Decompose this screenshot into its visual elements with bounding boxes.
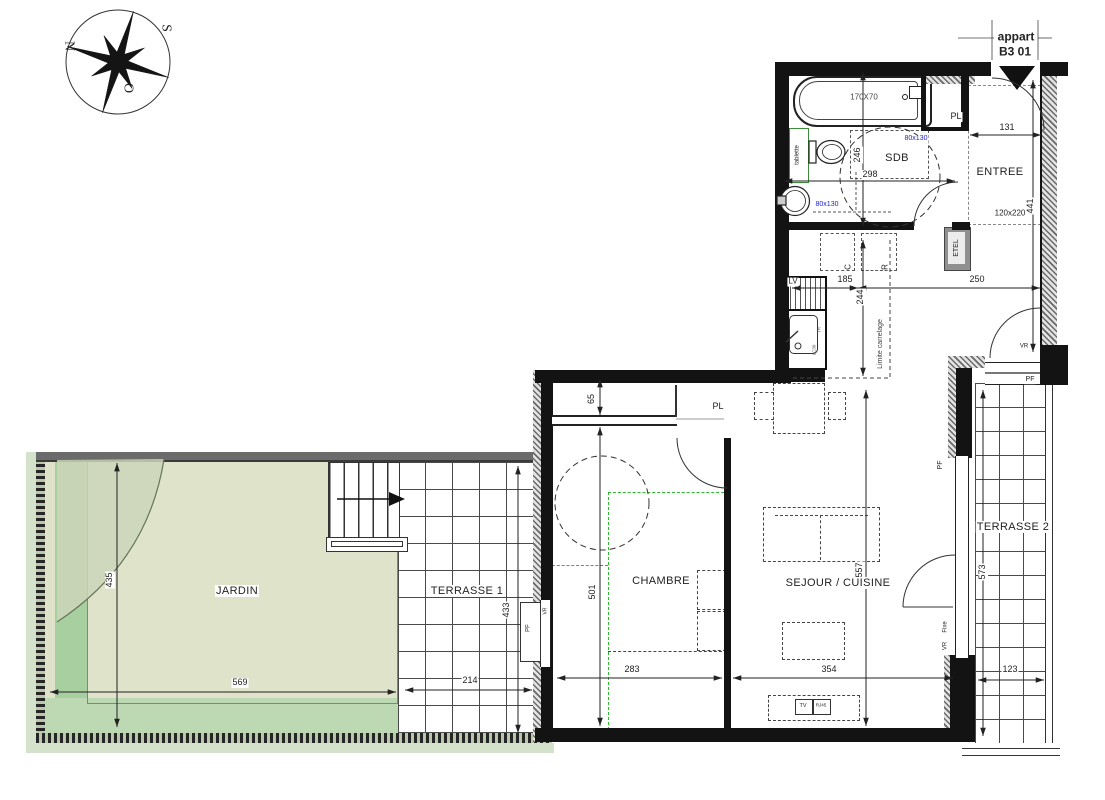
dining-chair-left — [754, 392, 774, 420]
tv-label: TV — [798, 703, 807, 709]
dim-65: 65 — [587, 393, 597, 405]
bathtub-size-label: 170X70 — [849, 94, 879, 103]
dim-433: 433 — [502, 601, 512, 618]
terrasse2-label: TERRASSE 2 — [976, 521, 1050, 533]
mid-west-wall-hatch — [533, 370, 541, 742]
dim-573: 573 — [978, 563, 988, 580]
fridge-zone — [861, 233, 897, 271]
nightstand-1 — [697, 570, 726, 610]
entree-label: ENTREE — [975, 166, 1024, 178]
dim-246: 246 — [853, 146, 863, 163]
dim-185: 185 — [836, 275, 853, 285]
etel-label: ETEL — [953, 238, 961, 258]
bed-clearance-line — [552, 565, 608, 566]
fridge-label: R — [882, 263, 891, 271]
floor-plan: appart B3 01 N S O JARDIN TERRASSE 1 TER… — [0, 0, 1105, 800]
pl-south-wall — [921, 127, 969, 131]
jardin-top-wall — [36, 452, 538, 462]
dim-557: 557 — [855, 561, 865, 578]
pf-east-label: PF — [937, 460, 945, 471]
dining-chair-right — [828, 392, 846, 420]
sofa-divider-line — [820, 515, 821, 560]
dim-214: 214 — [461, 676, 478, 686]
lc30-label: LC30 — [813, 344, 818, 357]
toilet — [809, 141, 845, 164]
tablette-label: tablette — [795, 144, 802, 166]
tile-limit-label: Limite carrelage — [877, 318, 885, 370]
compass-west-label: O — [120, 82, 135, 94]
jardin-outer-margin-bottom — [26, 743, 554, 753]
sdb-south-wall-a — [789, 222, 914, 230]
sejour-east-door-frame — [955, 552, 969, 658]
pl-divider-wall — [921, 76, 926, 128]
dim-354: 354 — [820, 665, 837, 675]
pl-top-label: PL — [949, 112, 962, 122]
vr-terrasse2-label: VR — [1019, 344, 1029, 351]
sejour-east-wall-upper — [956, 368, 972, 458]
tr-label: TR — [818, 326, 823, 334]
sdb-north-wall — [775, 62, 991, 76]
dim-250: 250 — [968, 275, 985, 285]
east-exterior-wall — [1040, 76, 1057, 363]
sejour-label: SEJOUR / CUISINE — [785, 577, 892, 589]
chambre-door-arc — [677, 438, 727, 488]
terrasse1-label: TERRASSE 1 — [430, 585, 504, 597]
sejour-door-arc — [903, 555, 955, 607]
lv-label: LV — [787, 278, 798, 287]
sdb-west-wall — [775, 62, 789, 378]
jardin-fence-bottom — [36, 733, 552, 743]
entree-window-arc — [990, 308, 1040, 358]
apartment-label-line1: appart — [997, 30, 1036, 43]
sdb-door-arc — [914, 182, 958, 226]
dim-131: 131 — [998, 123, 1015, 133]
entree-mat-size-label: 120x220 — [994, 210, 1027, 219]
entree-south-hatch-wall — [948, 356, 985, 368]
vr-west-label: VR — [543, 607, 549, 616]
jardin-fence-left — [36, 452, 45, 743]
compass-rose — [66, 10, 170, 114]
sdb-label: SDB — [884, 152, 910, 164]
dim-435: 435 — [105, 571, 115, 588]
bed-mid-line — [608, 651, 727, 652]
chambre-label: CHAMBRE — [631, 575, 691, 587]
dim-283: 283 — [623, 665, 640, 675]
terrasse2-railing-bottom — [962, 748, 1060, 756]
entree-terrasse2-window-mullion — [985, 372, 1040, 374]
dim-441: 441 — [1026, 197, 1036, 214]
dim-123: 123 — [1001, 665, 1018, 675]
terrasse1-floor-tiles — [398, 462, 534, 733]
compass-south-label: S — [158, 23, 173, 33]
garden-stairs-landing-inner — [331, 541, 403, 547]
fixe-east-label: Fixe — [943, 620, 950, 633]
sdb-south-wall-b — [952, 222, 970, 230]
cooker-label: C — [845, 263, 854, 271]
sdb-door-size-label-2: 80x130 — [815, 201, 840, 209]
pl-chambre-label: PL — [711, 402, 724, 412]
chambre-east-wall — [724, 438, 731, 728]
garden-stairs — [328, 462, 400, 539]
mid-south-wall — [535, 728, 975, 742]
dim-501: 501 — [588, 583, 598, 600]
mid-north-wall — [535, 370, 791, 383]
terrasse2-railing-right — [1045, 383, 1053, 743]
compass-north-label: N — [61, 40, 76, 52]
coffee-table — [782, 622, 845, 660]
dining-table — [773, 383, 825, 434]
terrasse2-ne-corner-wall — [1040, 345, 1068, 385]
pl-chambre-divider — [675, 385, 677, 417]
pl-chambre-wall — [552, 415, 677, 426]
rj45-label: RJ45 — [815, 704, 828, 709]
jardin-outer-margin-left — [26, 452, 36, 753]
entry-north-corner-wall — [1040, 62, 1068, 76]
apartment-label-line2: B3 01 — [998, 45, 1032, 58]
dim-244: 244 — [856, 288, 866, 305]
sdb-door-size-label-1: 80x130 — [904, 135, 929, 143]
sejour-east-window-fixed — [955, 456, 969, 552]
vr-east-label: VR — [943, 641, 950, 651]
jardin-label: JARDIN — [215, 585, 259, 597]
sofa-back-line — [775, 515, 868, 516]
pf-west-label: PF — [526, 623, 533, 633]
jardin-hedge-band-left — [55, 458, 87, 733]
dim-569: 569 — [231, 678, 248, 688]
sejour-east-wall-lower — [950, 655, 975, 742]
pf-terrasse2-label: PF — [1025, 376, 1036, 384]
dim-298: 298 — [861, 170, 878, 180]
nightstand-2 — [697, 611, 726, 651]
